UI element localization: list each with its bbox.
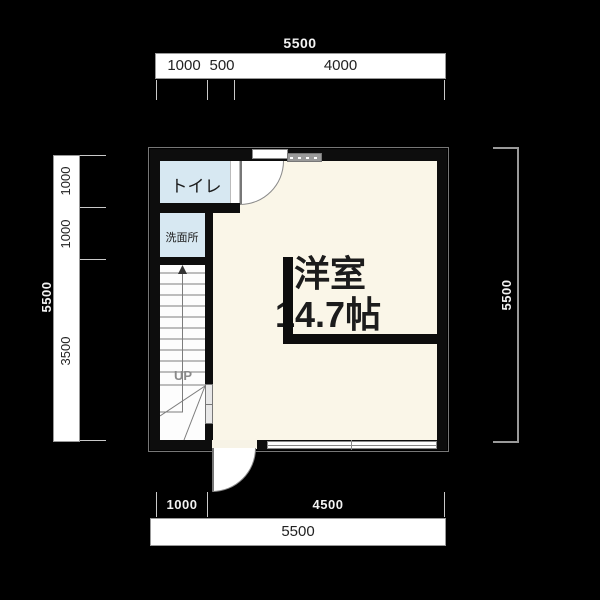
window-bottom [267, 441, 437, 449]
room-main-name: 洋室 [294, 254, 454, 294]
dim-top-tick [207, 80, 208, 100]
up-arrow-icon [178, 265, 187, 274]
dim-top-seg-500: 500 [208, 54, 236, 78]
wall-washroom-bottom [150, 257, 213, 265]
dim-bottom-seg-4500: 4500 [228, 497, 428, 511]
dim-left-tick [80, 440, 106, 441]
dim-right-tick [493, 441, 518, 443]
room-main-size: 14.7帖 [275, 295, 445, 335]
wall-partition-vertical [283, 257, 293, 344]
dim-bottom-tick [444, 492, 445, 517]
wall-left [150, 149, 160, 450]
dim-top-tick [156, 80, 157, 100]
dim-bottom-seg-1000: 1000 [157, 497, 207, 511]
dim-left-tick [80, 207, 106, 208]
toilet-doorway [230, 161, 240, 203]
dim-left-seg-3500: 3500 [53, 321, 79, 381]
dim-bottom-tick [207, 492, 208, 517]
staircase-door [205, 384, 213, 424]
staircase-up-label: UP [167, 368, 199, 383]
room-washroom-label: 洗面所 [152, 229, 212, 245]
dim-top-seg-1000: 1000 [156, 54, 212, 78]
window-bottom-meeting-tick [351, 440, 352, 450]
dim-right-line [517, 147, 519, 443]
dim-left-total: 5500 [39, 267, 53, 327]
room-toilet-label: トイレ [166, 172, 226, 197]
dim-right-tick [493, 147, 518, 149]
dim-top-seg-4000: 4000 [236, 54, 445, 78]
dim-right-total: 5500 [499, 265, 513, 325]
window-top-screen [287, 153, 322, 162]
dim-left-tick [80, 155, 106, 156]
dim-top-bar: 1000 500 4000 [155, 53, 446, 79]
dim-bottom-total: 5500 [150, 518, 446, 546]
dim-left-seg-1000b: 1000 [53, 204, 79, 264]
dim-top-tick [234, 80, 235, 100]
wall-partition-horizontal [283, 334, 447, 344]
dim-left-tick [80, 259, 106, 260]
dim-left-seg-1000a: 1000 [53, 151, 79, 211]
staircase-steps [160, 265, 205, 440]
floor-plan: 5500 1000 500 4000 5500 1000 1000 3500 5… [0, 0, 600, 600]
dim-top-tick [444, 80, 445, 100]
entrance-door-swing [212, 448, 256, 492]
wall-toilet-bottom [150, 203, 240, 213]
dim-top-total: 5500 [250, 35, 350, 50]
window-top-pane [252, 149, 288, 159]
